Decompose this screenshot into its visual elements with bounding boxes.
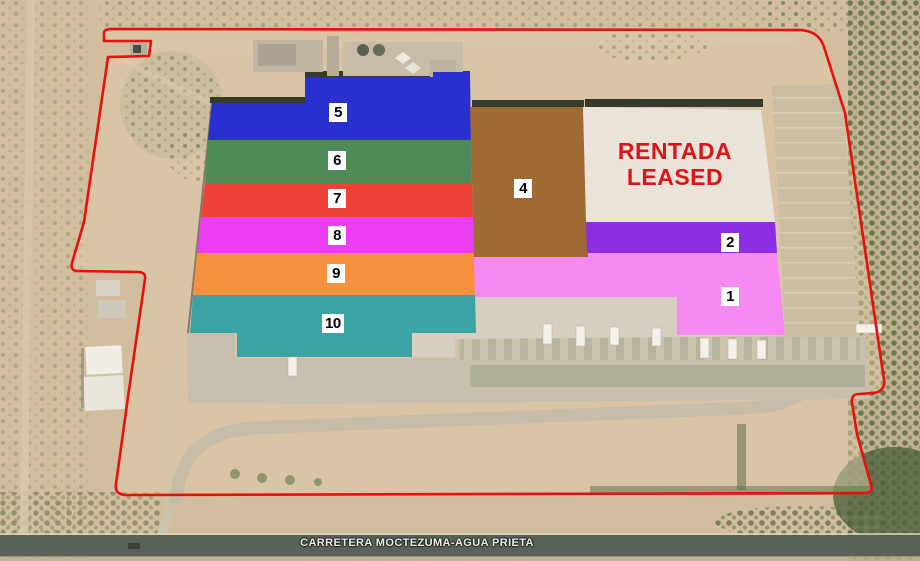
zone-9-label: 9 xyxy=(327,264,345,283)
truck-trailer xyxy=(288,357,297,376)
zone-10-label: 10 xyxy=(322,314,344,333)
highway-name-label: CARRETERA MOCTEZUMA-AGUA PRIETA xyxy=(267,537,567,549)
utility-yard xyxy=(253,36,463,78)
truck-trailer xyxy=(543,324,552,344)
zone-6-label: 6 xyxy=(328,151,346,170)
truck-trailer xyxy=(728,339,737,359)
site-plan-aerial-view: 5 6 7 8 9 10 4 2 1 RENTADA LEASED CARRET… xyxy=(0,0,920,561)
zone-7-label: 7 xyxy=(328,189,346,208)
storage-tank xyxy=(373,44,385,56)
satellite-background xyxy=(0,0,920,561)
leased-annotation: RENTADA LEASED xyxy=(590,138,760,190)
tree-line xyxy=(737,424,746,490)
storage-tank xyxy=(357,44,369,56)
west-scrubland xyxy=(0,0,90,561)
car-on-highway xyxy=(128,543,140,549)
truck-trailer xyxy=(700,338,709,358)
truck-trailer xyxy=(757,340,766,359)
zone-1-label: 1 xyxy=(721,287,739,306)
truck-trailer xyxy=(652,328,661,346)
zone-5-label: 5 xyxy=(329,103,347,122)
zone-2-label: 2 xyxy=(721,233,739,252)
zone-2-area xyxy=(586,222,777,253)
leased-annotation-line1: RENTADA xyxy=(590,138,760,164)
zone-8-label: 8 xyxy=(328,226,346,245)
truck-trailer xyxy=(576,326,585,346)
truck-trailer xyxy=(610,327,619,345)
zone-4-label: 4 xyxy=(514,179,532,198)
scrub-top-strip xyxy=(100,0,820,27)
leased-annotation-line2: LEASED xyxy=(590,164,760,190)
lower-yard xyxy=(470,365,865,387)
